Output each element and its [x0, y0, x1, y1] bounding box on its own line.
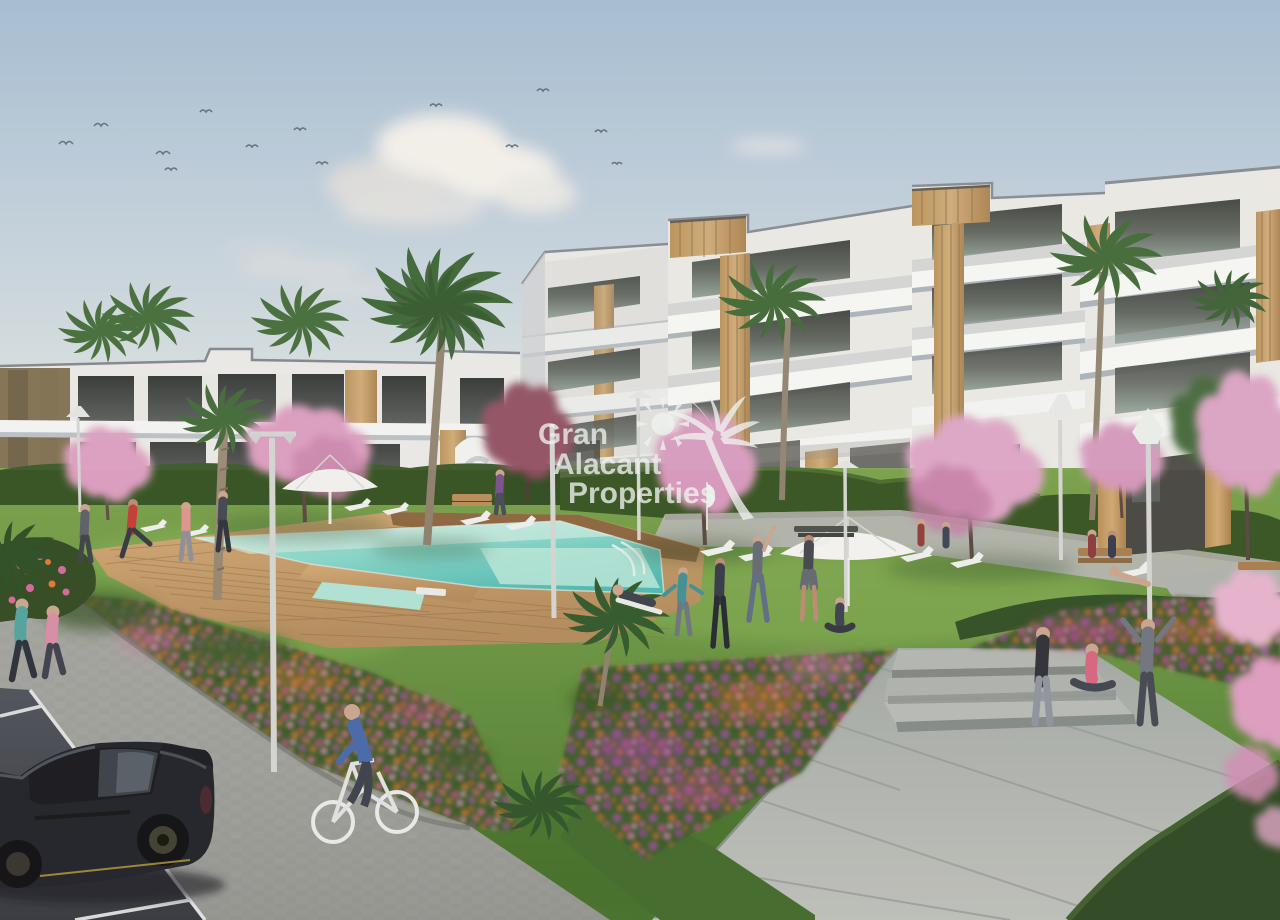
- svg-text:Gran: Gran: [538, 418, 608, 451]
- svg-text:Properties: Properties: [568, 477, 716, 510]
